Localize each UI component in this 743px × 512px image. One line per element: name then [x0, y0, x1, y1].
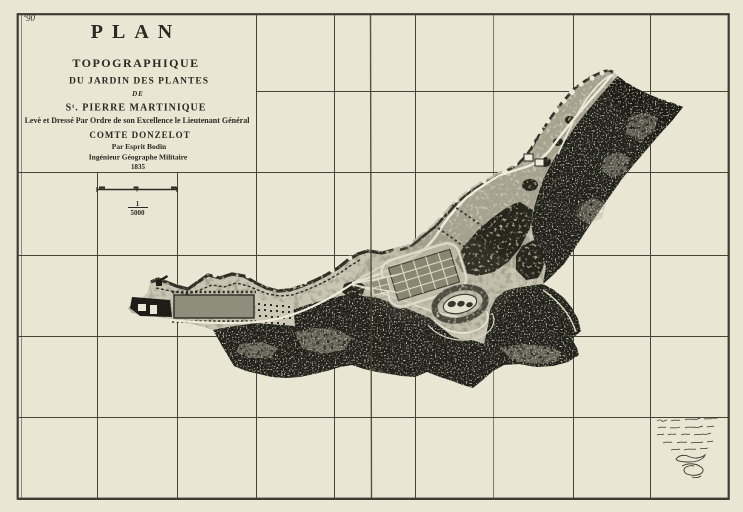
svg-text:COMTE DONZELOT: COMTE DONZELOT	[89, 130, 190, 140]
svg-text:Par Esprit Bodin: Par Esprit Bodin	[112, 142, 167, 151]
svg-text:DE: DE	[131, 90, 144, 98]
svg-text:DU JARDIN DES PLANTES: DU JARDIN DES PLANTES	[69, 77, 209, 87]
svg-text:1: 1	[136, 200, 140, 208]
svg-text:Sᵗ. PIERRE MARTINIQUE: Sᵗ. PIERRE MARTINIQUE	[66, 103, 207, 114]
svg-text:5000: 5000	[131, 209, 146, 217]
svg-text:1835: 1835	[131, 163, 146, 171]
svg-text:TOPOGRAPHIQUE: TOPOGRAPHIQUE	[72, 56, 199, 70]
svg-text:‘90: ‘90	[23, 13, 35, 23]
svg-text:Levè et Dressé Par Ordre de so: Levè et Dressé Par Ordre de son Excellen…	[25, 116, 251, 125]
svg-text:Ingénieur Géographe Militaire: Ingénieur Géographe Militaire	[89, 153, 188, 162]
svg-text:PLAN: PLAN	[91, 21, 181, 43]
